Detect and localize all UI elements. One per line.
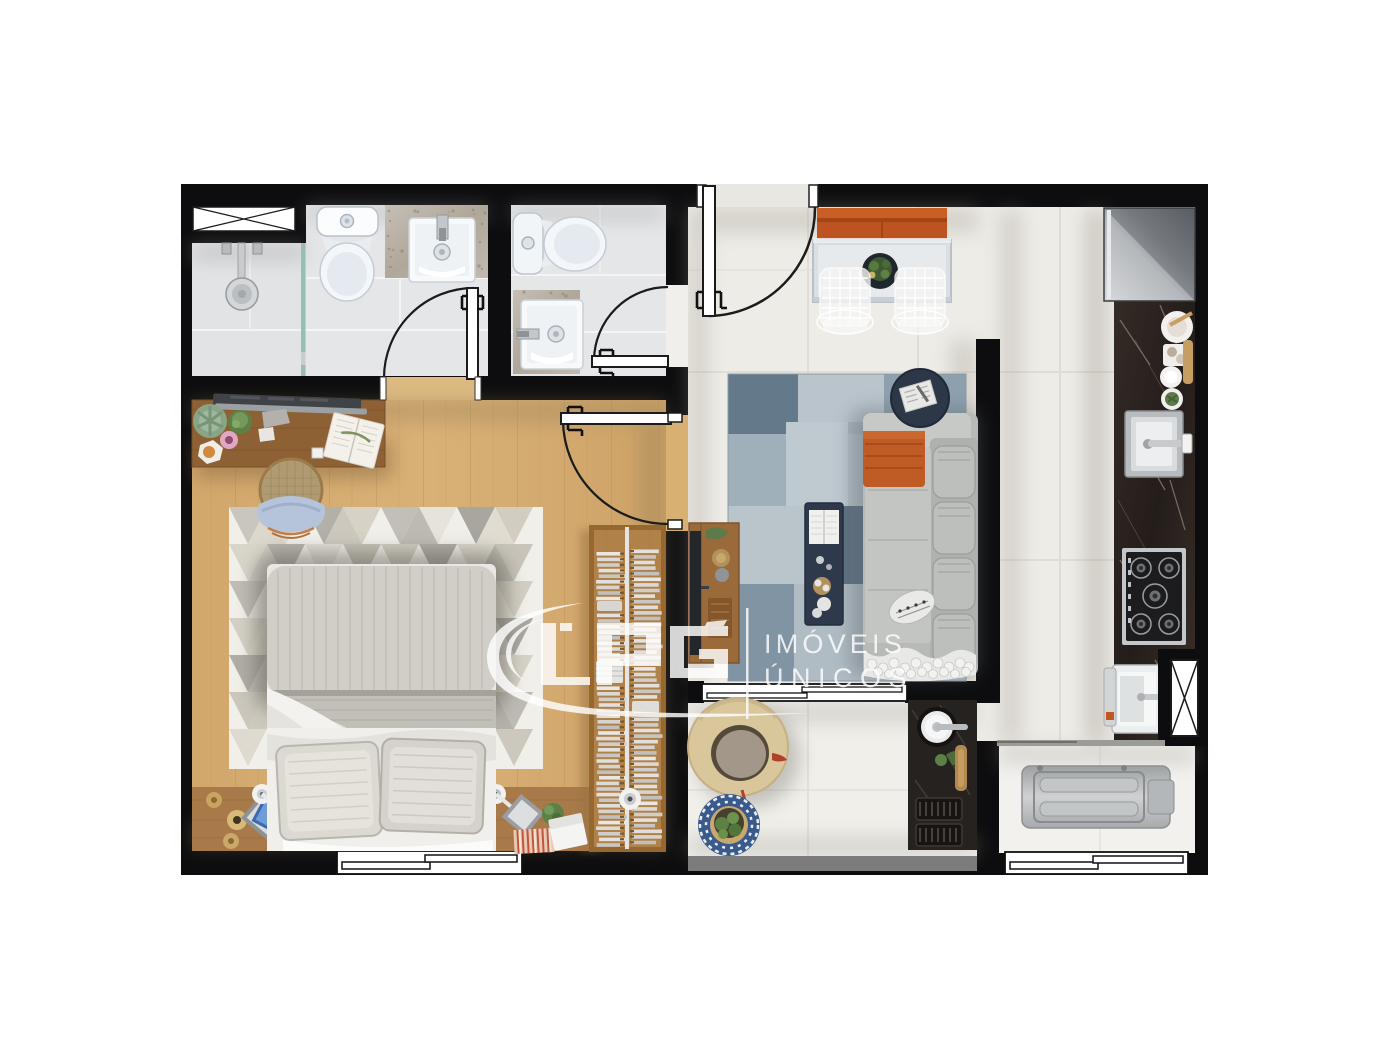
svg-text:IMÓVEIS: IMÓVEIS: [764, 628, 906, 659]
svg-text:ÚNICOS: ÚNICOS: [764, 662, 914, 693]
